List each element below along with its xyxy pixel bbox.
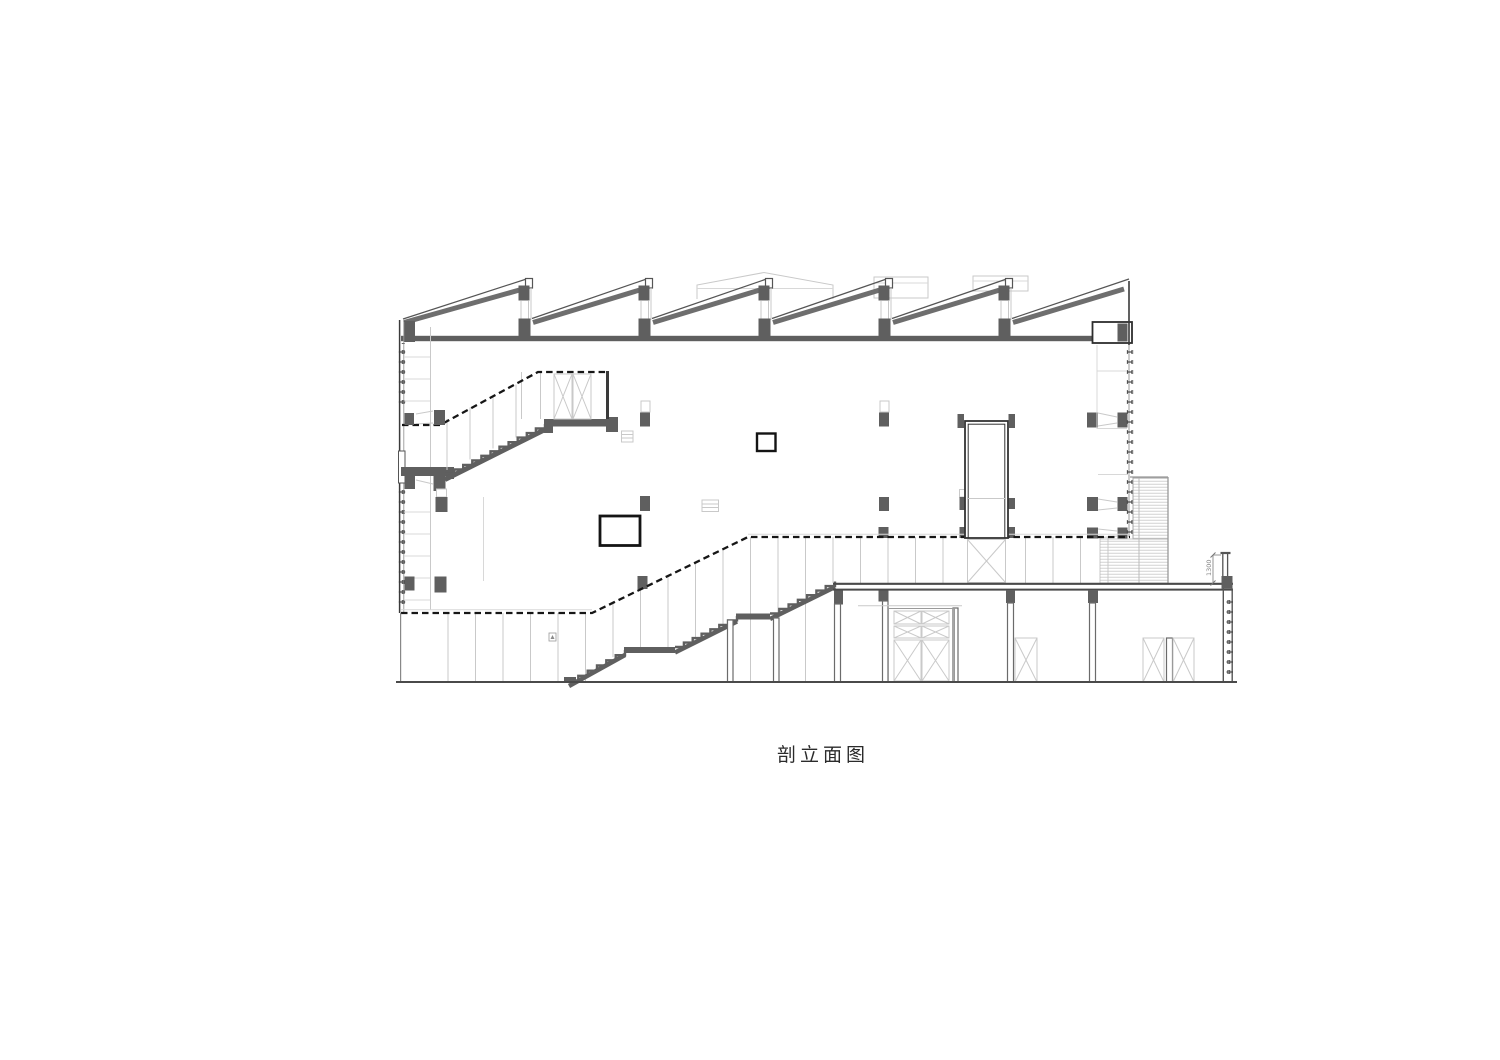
hall-openings <box>600 431 776 546</box>
right-parapet <box>1221 553 1233 682</box>
floor-edge-dashed <box>401 534 1130 613</box>
hall-floor-edge-dashed <box>401 537 1130 613</box>
elevator-shaft <box>958 414 1016 583</box>
fixture-box <box>622 431 634 442</box>
fixture-box <box>702 500 719 512</box>
louver-tower <box>1098 475 1168 584</box>
hall-columns <box>405 401 1128 593</box>
right-wall <box>1097 281 1133 537</box>
wall-opening-small <box>757 434 776 452</box>
stair-landing-1 <box>624 647 675 653</box>
entrance-door <box>858 606 962 682</box>
main-stair <box>564 582 835 687</box>
roof-corner-curb <box>1093 322 1133 343</box>
clerestory-peak-2 <box>639 286 652 341</box>
elevator-door-panel <box>968 540 1006 583</box>
section-elevation-drawing: 1300 <box>0 0 1500 1060</box>
left-wall <box>399 320 434 613</box>
clerestory-peak-1 <box>519 286 532 341</box>
wall-opening-large <box>600 516 640 546</box>
drawing-title: 剖立面图 <box>777 740 869 767</box>
upper-stair-steps <box>445 424 545 474</box>
dimension-label: 1300 <box>1205 559 1213 576</box>
sawtooth-roof <box>401 279 1132 344</box>
railing-dimension: 1300 <box>1205 553 1221 586</box>
roof-slab <box>401 336 1093 341</box>
clerestory-peak-3 <box>759 286 772 341</box>
clerestory-peak-5 <box>999 286 1012 341</box>
clerestory-peak-4 <box>879 286 892 341</box>
stair-landing-2 <box>736 614 770 620</box>
stair-upper-landing <box>544 419 608 427</box>
drawing-sheet: 1300 剖立面图 <box>0 0 1500 1060</box>
level-marker-symbol <box>549 633 556 641</box>
upper-stair <box>401 371 618 491</box>
upper-landing-door <box>522 372 592 419</box>
